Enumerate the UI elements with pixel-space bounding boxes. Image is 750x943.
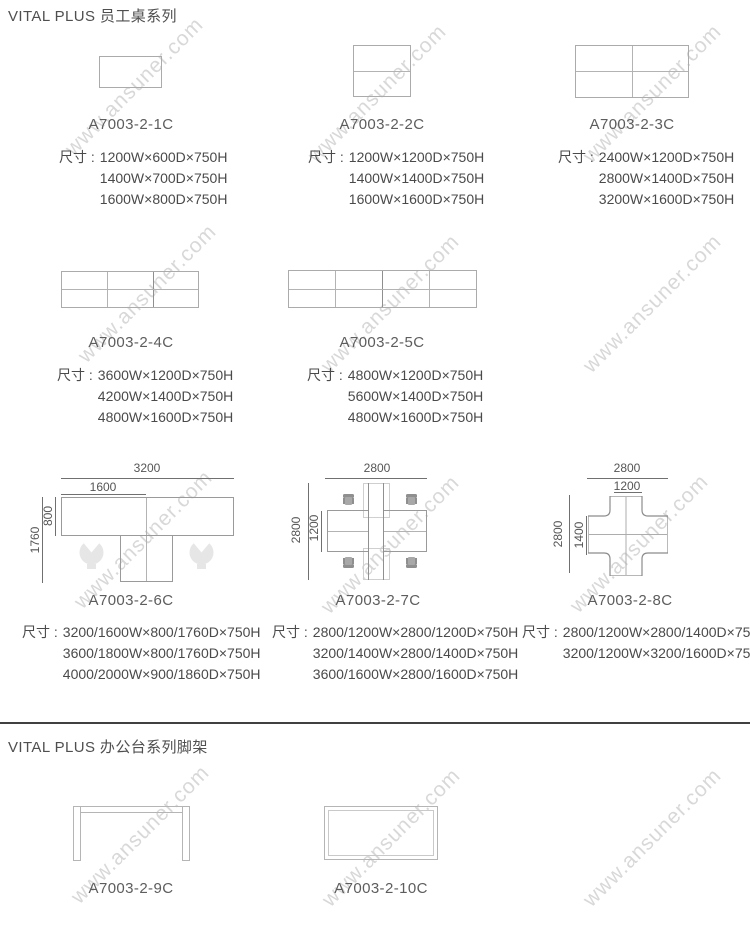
frame-leg-diagram — [182, 806, 190, 861]
desk-top-view-diagram — [99, 56, 162, 88]
cross-desk-diagram — [588, 496, 668, 576]
chair-icon — [343, 494, 354, 507]
product-code: A7003-2-4C — [56, 334, 206, 351]
size-prefix: 尺寸 : — [22, 622, 58, 643]
spec-line: 4800W×1200D×750H — [348, 365, 483, 386]
spec-line: 1600W×800D×750H — [100, 189, 228, 210]
product-code: A7003-2-7C — [303, 592, 453, 609]
product-code: A7003-2-3C — [557, 116, 707, 133]
chair-icon — [78, 540, 105, 569]
size-prefix: 尺寸 : — [57, 365, 93, 386]
spec-line: 2800W×1400D×750H — [599, 168, 734, 189]
product-specs: 尺寸 : 1200W×1200D×750H 1400W×1400D×750H 1… — [308, 147, 484, 210]
dim-label-outer-depth: 2800 — [551, 504, 565, 564]
spec-line: 1400W×1400D×750H — [349, 168, 484, 189]
spec-line: 4800W×1600D×750H — [98, 407, 233, 428]
diagram-divider-line — [384, 531, 426, 532]
spec-line: 1200W×1200D×750H — [349, 147, 484, 168]
dim-label-inner-depth: 800 — [41, 486, 55, 546]
desk-top-view-diagram — [61, 497, 234, 536]
chair-icon — [343, 555, 354, 568]
diagram-divider-line — [328, 531, 368, 532]
product-specs: 尺寸 : 3600W×1200D×750H 4200W×1400D×750H 4… — [57, 365, 233, 428]
watermark: www.ansuner.com — [579, 764, 727, 912]
diagram-divider-line — [576, 71, 688, 72]
section-title-leg-frame-series: VITAL PLUS 办公台系列脚架 — [8, 736, 208, 757]
product-code: A7003-2-5C — [307, 334, 457, 351]
spec-line: 1400W×700D×750H — [100, 168, 228, 189]
frame-top-bar-diagram — [73, 806, 190, 813]
product-code: A7003-2-9C — [56, 880, 206, 897]
dim-label-inner-depth: 1400 — [572, 505, 586, 565]
spec-line: 5600W×1400D×750H — [348, 386, 483, 407]
spec-line: 4200W×1400D×750H — [98, 386, 233, 407]
dim-line — [321, 511, 322, 552]
product-specs: 尺寸 : 2800/1200W×2800/1200D×750H 3200/140… — [272, 622, 518, 685]
section-divider — [0, 722, 750, 724]
product-specs: 尺寸 : 1200W×600D×750H 1400W×700D×750H 160… — [59, 147, 227, 210]
dim-label-outer-depth: 1760 — [28, 510, 42, 570]
spec-line: 3200W×1600D×750H — [599, 189, 734, 210]
chair-icon — [188, 540, 215, 569]
product-specs: 尺寸 : 2400W×1200D×750H 2800W×1400D×750H 3… — [558, 147, 734, 210]
product-specs: 尺寸 : 4800W×1200D×750H 5600W×1400D×750H 4… — [307, 365, 483, 428]
size-prefix: 尺寸 : — [522, 622, 558, 643]
dim-line — [61, 478, 234, 479]
dim-label-inner-width: 1600 — [73, 480, 133, 494]
center-spine-diagram — [368, 483, 384, 580]
diagram-divider-line — [146, 498, 147, 535]
spec-line: 3600/1600W×2800/1600D×750H — [313, 664, 519, 685]
product-code: A7003-2-10C — [306, 880, 456, 897]
spec-line: 1200W×600D×750H — [100, 147, 228, 168]
frame-inner-diagram — [328, 810, 434, 856]
dim-label-outer-width: 2800 — [597, 461, 657, 475]
spec-line: 3200/1600W×800/1760D×750H — [63, 622, 261, 643]
size-prefix: 尺寸 : — [272, 622, 308, 643]
product-specs: 尺寸 : 2800/1200W×2800/1400D×750H 3200/120… — [522, 622, 750, 664]
dim-line — [569, 495, 570, 573]
chair-icon — [406, 494, 417, 507]
product-code: A7003-2-1C — [56, 116, 206, 133]
product-code: A7003-2-8C — [555, 592, 705, 609]
watermark: www.ansuner.com — [579, 230, 727, 378]
dim-label-inner-width: 1200 — [597, 479, 657, 493]
spec-line: 3200/1200W×3200/1600D×750H — [563, 643, 750, 664]
spec-line: 1600W×1600D×750H — [349, 189, 484, 210]
diagram-divider-line — [354, 71, 410, 72]
size-prefix: 尺寸 : — [308, 147, 344, 168]
spec-line: 2800/1200W×2800/1400D×750H — [563, 622, 750, 643]
chair-icon — [406, 555, 417, 568]
size-prefix: 尺寸 : — [558, 147, 594, 168]
spec-line: 3600/1800W×800/1760D×750H — [63, 643, 261, 664]
spec-line: 3600W×1200D×750H — [98, 365, 233, 386]
dim-label-outer-depth: 2800 — [289, 500, 303, 560]
dim-label-outer-width: 3200 — [117, 461, 177, 475]
dim-label-outer-width: 2800 — [347, 461, 407, 475]
dim-line — [325, 478, 427, 479]
dim-label-inner-depth: 1200 — [307, 498, 321, 558]
size-prefix: 尺寸 : — [307, 365, 343, 386]
dim-line — [55, 497, 56, 536]
diagram-divider-line — [62, 289, 198, 290]
spec-line: 4800W×1600D×750H — [348, 407, 483, 428]
product-specs: 尺寸 : 3200/1600W×800/1760D×750H 3600/1800… — [22, 622, 261, 685]
dim-line — [586, 516, 587, 555]
diagram-divider-line — [289, 289, 476, 290]
spec-line: 2800/1200W×2800/1200D×750H — [313, 622, 519, 643]
product-code: A7003-2-6C — [56, 592, 206, 609]
size-prefix: 尺寸 : — [59, 147, 95, 168]
spec-line: 3200/1400W×2800/1400D×750H — [313, 643, 519, 664]
frame-leg-diagram — [73, 806, 81, 861]
spec-line: 4000/2000W×900/1860D×750H — [63, 664, 261, 685]
dim-line — [61, 494, 146, 495]
diagram-divider-line — [146, 536, 147, 581]
product-code: A7003-2-2C — [307, 116, 457, 133]
spec-line: 2400W×1200D×750H — [599, 147, 734, 168]
section-title-desk-series: VITAL PLUS 员工桌系列 — [8, 5, 177, 26]
